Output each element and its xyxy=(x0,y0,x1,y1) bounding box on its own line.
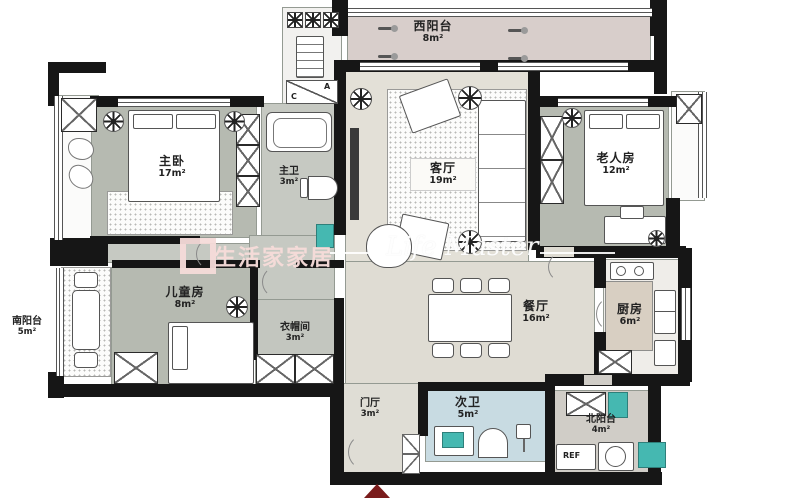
room-label-dining-room: 餐厅16m² xyxy=(506,300,566,325)
wall-segment xyxy=(594,248,606,288)
script-watermark: Life Master xyxy=(386,232,539,262)
toilet-arch xyxy=(478,428,508,458)
refrigerator-label: REF xyxy=(563,451,580,460)
dining-chair xyxy=(460,343,482,358)
wall-segment xyxy=(418,382,548,391)
wall-lamp-icon xyxy=(508,29,522,32)
watermark-line xyxy=(330,252,378,254)
brand-watermark: 生活家家居 xyxy=(214,240,334,272)
burner xyxy=(616,266,626,276)
dining-chair xyxy=(460,278,482,293)
balcony-chair xyxy=(74,352,98,368)
ceiling-rose-icon xyxy=(648,230,665,247)
wall-segment xyxy=(334,298,344,386)
wardrobe xyxy=(236,145,260,176)
dining-chair xyxy=(488,343,510,358)
wall-segment xyxy=(528,60,540,250)
wardrobe xyxy=(540,160,564,204)
brand-logo xyxy=(180,238,216,274)
shower-head xyxy=(516,424,531,439)
toilet xyxy=(308,176,338,200)
ceiling-fan-icon xyxy=(350,88,372,110)
washer-drum xyxy=(605,446,626,467)
shoe-cabinet xyxy=(402,454,420,474)
pillow xyxy=(589,114,623,129)
window xyxy=(558,98,648,107)
floor-plan: C A xyxy=(0,0,800,500)
storage-cabinet xyxy=(566,392,606,416)
bathtub-inner xyxy=(273,118,327,148)
burner xyxy=(634,266,644,276)
ceiling-rose-icon xyxy=(226,296,248,318)
duct-label-c: C xyxy=(291,92,297,101)
wardrobe xyxy=(236,176,260,207)
room-label-west-balcony: 西阳台8m² xyxy=(388,20,478,45)
room-label-elder-room: 老人房12m² xyxy=(580,152,652,177)
ac-unit xyxy=(676,94,702,124)
ceiling-rose-icon xyxy=(562,108,582,128)
window xyxy=(360,62,480,71)
pillow xyxy=(626,114,660,129)
balcony-railing xyxy=(56,268,64,376)
kitchen-cabinet xyxy=(654,340,676,366)
room-label-entry-hall: 门厅3m² xyxy=(344,398,396,419)
duct-label-a: A xyxy=(324,82,330,91)
decor-stone xyxy=(68,138,94,160)
balcony-railing xyxy=(348,8,652,17)
ceiling-rose-icon xyxy=(224,111,245,132)
door-arc xyxy=(548,252,578,282)
ladder-icon xyxy=(296,36,324,78)
dining-chair xyxy=(432,343,454,358)
laundry-sink xyxy=(638,442,666,468)
window xyxy=(498,62,628,71)
dining-chair xyxy=(432,278,454,293)
shoe-cabinet xyxy=(402,434,420,454)
wardrobe xyxy=(114,352,158,384)
ceiling-rose-icon xyxy=(103,111,124,132)
pillow xyxy=(172,326,188,370)
wall-segment xyxy=(545,374,690,386)
dining-table xyxy=(428,294,512,342)
tv-cabinet xyxy=(350,128,359,220)
pillow xyxy=(133,114,173,129)
wall-segment xyxy=(48,384,340,397)
balcony-chair xyxy=(74,272,98,288)
kitchen-sink-divider xyxy=(655,311,675,312)
room-label-living-room: 客厅19m² xyxy=(410,158,476,191)
entrance-marker xyxy=(364,484,390,498)
room-label-children-room: 儿童房8m² xyxy=(150,286,220,311)
window xyxy=(681,288,691,340)
shower-pole xyxy=(523,439,525,452)
door-opening xyxy=(584,375,612,385)
kitchen-lower-cabinet xyxy=(598,350,632,374)
wall-segment xyxy=(650,0,667,36)
wardrobe xyxy=(256,354,295,384)
wall-segment xyxy=(330,384,344,484)
ac-fan-icon xyxy=(287,12,303,28)
room-label-north-balcony: 北阳台4m² xyxy=(566,414,636,435)
ac-fan-icon xyxy=(305,12,321,28)
wall-lamp-icon xyxy=(508,57,522,60)
ac-fan-icon xyxy=(323,12,339,28)
washing-machine-screen xyxy=(442,432,464,448)
window xyxy=(118,98,230,107)
ceiling-rose-icon xyxy=(458,86,482,110)
room-label-master-bath: 主卫3m² xyxy=(266,166,312,187)
desk-chair xyxy=(620,206,644,219)
pillow xyxy=(176,114,216,129)
watermark-line xyxy=(540,252,615,254)
wardrobe xyxy=(295,354,334,384)
room-label-second-bath: 次卫5m² xyxy=(438,396,498,421)
room-label-south-balcony: 南阳台5m² xyxy=(2,316,52,337)
room-label-cloak-room: 衣帽间3m² xyxy=(258,322,332,343)
balcony-table xyxy=(72,290,100,350)
room-label-master-bedroom: 主卧17m² xyxy=(142,155,202,180)
wardrobe xyxy=(540,116,564,160)
sofa xyxy=(478,100,526,242)
wall-lamp-icon xyxy=(378,55,392,58)
wall-segment xyxy=(545,382,555,472)
entry-door-arc xyxy=(348,434,384,470)
dining-chair xyxy=(488,278,510,293)
ac-unit xyxy=(61,98,97,132)
room-label-kitchen: 厨房6m² xyxy=(602,303,658,328)
wall-segment xyxy=(418,384,428,436)
